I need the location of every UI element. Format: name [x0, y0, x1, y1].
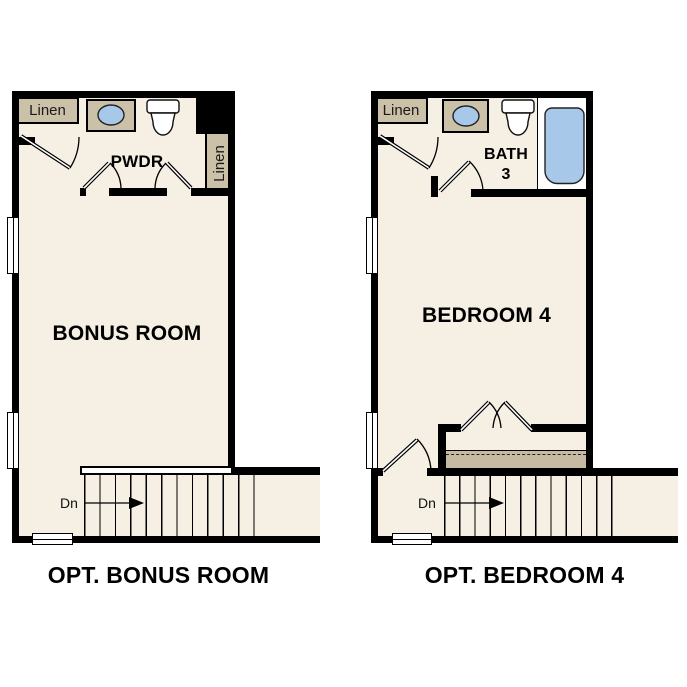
wall-closet-top — [531, 424, 593, 432]
floorplan-canvas: Linen Linen PWDR BONUS ROOM Dn OPT. BONU… — [0, 0, 687, 687]
window — [7, 412, 19, 469]
wall-bath-stub — [431, 176, 438, 197]
linen-closet-top: Linen — [374, 97, 428, 124]
wall — [427, 468, 438, 476]
bath3-label-line2: 3 — [468, 165, 544, 185]
bonus-room-label: BONUS ROOM — [24, 322, 230, 346]
linen-side-label: Linen — [211, 145, 228, 182]
wall-closet-top — [438, 424, 461, 432]
wall — [233, 467, 320, 475]
wall-door-stub — [19, 137, 35, 145]
wall — [371, 468, 383, 476]
window — [392, 533, 432, 545]
window — [32, 533, 73, 545]
linen-label: Linen — [29, 102, 66, 119]
closet-rod-dashed-line — [446, 454, 586, 455]
linen-label: Linen — [383, 102, 420, 119]
plan-caption-bedroom4: OPT. BEDROOM 4 — [372, 562, 677, 589]
wall — [471, 189, 593, 197]
stair-treads — [84, 475, 255, 536]
wall — [228, 91, 235, 475]
wall — [109, 188, 167, 196]
powder-room-label: PWDR — [87, 152, 187, 172]
wall — [438, 468, 678, 476]
wall-door-stub — [378, 137, 394, 145]
wall — [191, 188, 233, 196]
closet-shelf — [446, 450, 586, 468]
window — [366, 217, 378, 274]
sink-counter — [86, 99, 136, 132]
bedroom4-label: BEDROOM 4 — [384, 304, 589, 328]
stairs-down-label: Dn — [414, 495, 440, 511]
stair-rail — [80, 466, 233, 475]
bath3-label-line1: BATH — [468, 145, 544, 165]
window — [7, 217, 19, 274]
sink-counter — [442, 99, 489, 133]
wall — [12, 91, 19, 543]
wall — [586, 91, 593, 475]
plan-caption-bonus-room: OPT. BONUS ROOM — [7, 562, 310, 589]
tub-surround — [537, 97, 587, 197]
window — [366, 412, 378, 469]
bath3-label: BATH 3 — [468, 145, 544, 185]
stair-treads — [444, 476, 613, 536]
wall — [371, 91, 593, 98]
wall — [80, 188, 86, 196]
linen-closet-top: Linen — [16, 97, 79, 124]
stairs-down-label: Dn — [56, 495, 82, 511]
